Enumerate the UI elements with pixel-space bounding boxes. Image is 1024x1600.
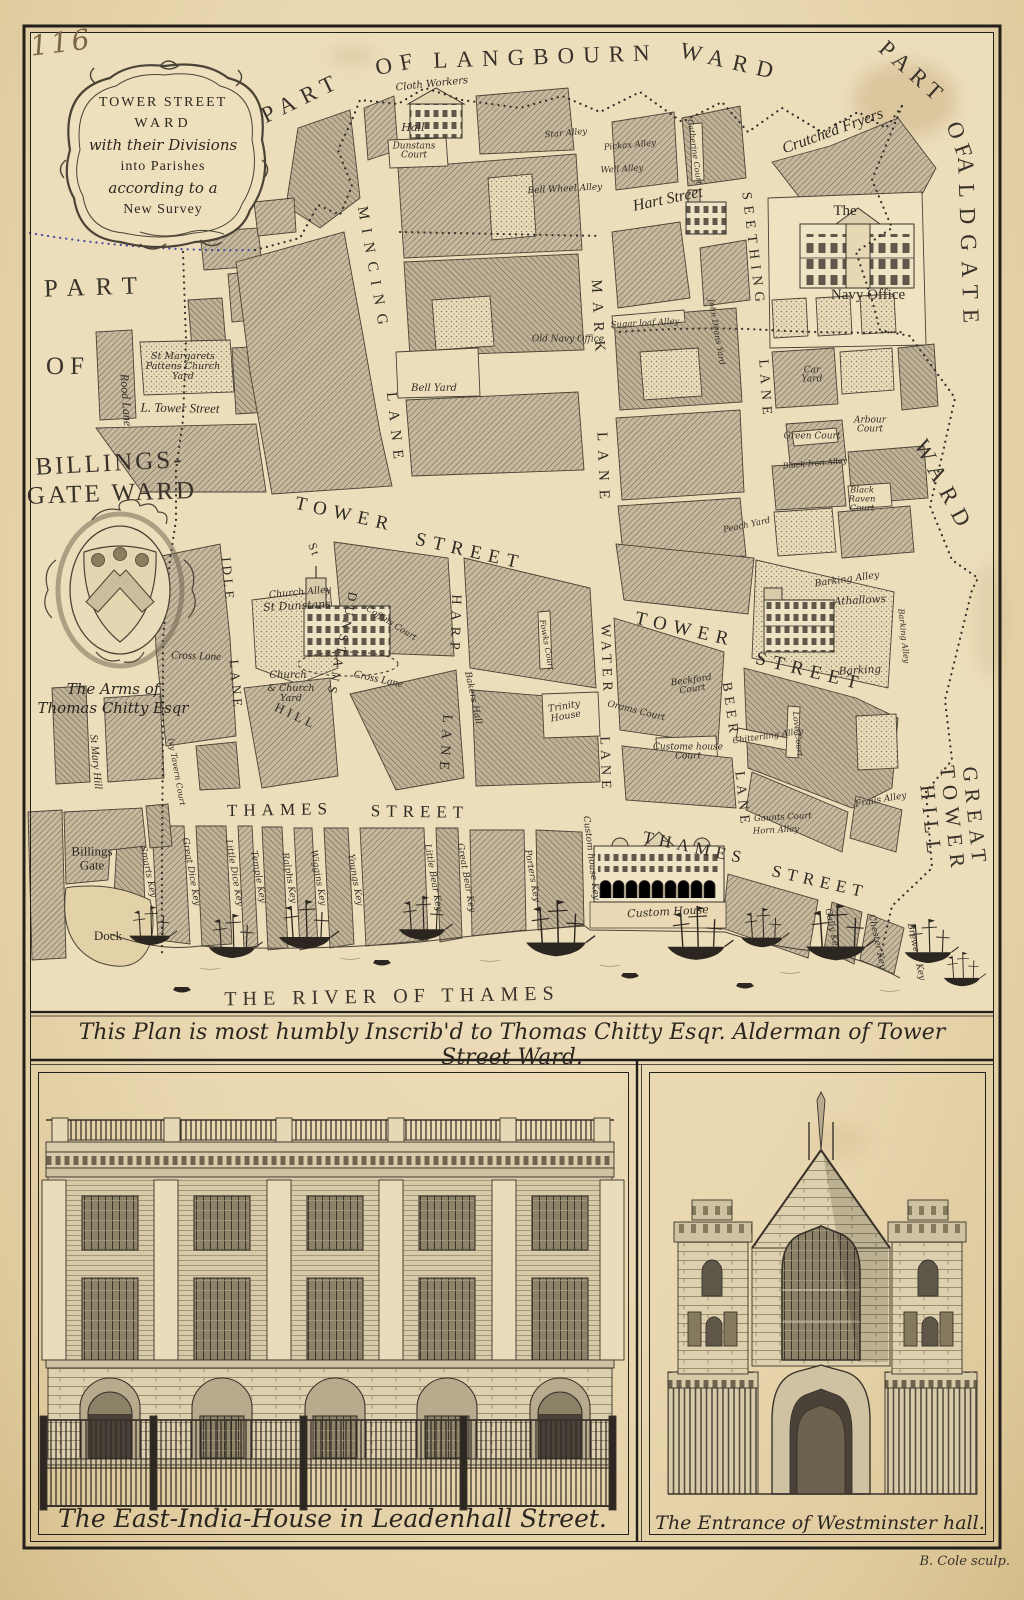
arms-caption-line: The Arms of (18, 680, 208, 699)
arms-caption: The Arms of Thomas Chitty Esqr (18, 680, 208, 718)
cartouche-line: WARD (62, 117, 264, 131)
westminster-hall-caption: The Entrance of Westminster hall. (650, 1512, 990, 1534)
cartouche-line: TOWER STREET (62, 96, 264, 110)
westminster-hall-engraving (668, 1092, 977, 1494)
cartouche-line: according to a (62, 181, 264, 196)
engraver-signature: B. Cole sculp. (860, 1554, 1010, 1569)
cartouche-line: New Survey (62, 203, 264, 217)
map-plate: 116 TOWER STREET WARD with their Divisio… (0, 0, 1024, 1600)
custom-house-building (590, 832, 726, 928)
cartouche-line: with their Divisions (62, 138, 264, 153)
east-india-house-engraving (40, 1118, 624, 1510)
dedication-inscription: This Plan is most humbly Inscrib'd to Th… (62, 1020, 962, 1070)
railing-fence (40, 1416, 616, 1510)
arms-caption-line: Thomas Chitty Esqr (18, 699, 208, 718)
map-engraving-svg (0, 0, 1024, 1600)
east-india-house-caption: The East-India-House in Leadenhall Stree… (45, 1504, 620, 1533)
cartouche-line: into Parishes (62, 160, 264, 174)
title-cartouche: TOWER STREET WARD with their Divisions i… (62, 96, 264, 217)
